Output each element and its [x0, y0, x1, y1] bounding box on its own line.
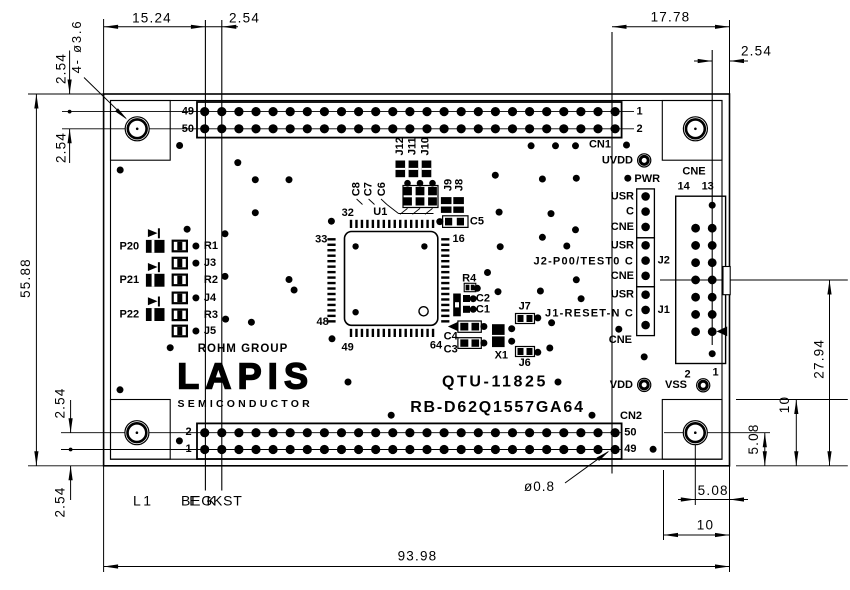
svg-text:J2-P00/TEST0 C: J2-P00/TEST0 C	[533, 256, 634, 268]
svg-text:ø0.8: ø0.8	[524, 479, 555, 494]
svg-text:33: 33	[315, 234, 327, 246]
svg-text:C1: C1	[476, 303, 490, 315]
svg-text:32: 32	[342, 207, 354, 219]
svg-text:CNE: CNE	[682, 165, 705, 177]
svg-text:10: 10	[697, 518, 714, 533]
svg-text:J7: J7	[519, 300, 531, 312]
svg-text:93.98: 93.98	[398, 549, 438, 564]
svg-text:P22: P22	[120, 309, 140, 321]
svg-text:49: 49	[182, 106, 194, 118]
svg-text:49: 49	[624, 443, 636, 455]
svg-text:50: 50	[182, 123, 194, 135]
svg-text:4- ø3.6: 4- ø3.6	[69, 20, 84, 74]
svg-text:QTU-11825: QTU-11825	[442, 374, 548, 391]
svg-text:E: E	[189, 492, 198, 508]
svg-text:CN1: CN1	[589, 138, 611, 150]
svg-text:14: 14	[677, 180, 690, 192]
svg-text:C7: C7	[363, 182, 375, 196]
svg-text:P21: P21	[120, 274, 140, 286]
svg-text:J2: J2	[658, 254, 670, 266]
svg-text:RB-D62Q1557GA64: RB-D62Q1557GA64	[410, 399, 585, 416]
svg-text:R2: R2	[204, 274, 218, 286]
svg-text:CNE: CNE	[611, 221, 634, 233]
svg-text:L1: L1	[133, 492, 154, 508]
svg-text:VDD: VDD	[610, 379, 633, 391]
svg-text:49: 49	[341, 342, 353, 354]
svg-text:17.78: 17.78	[651, 10, 691, 25]
svg-text:J8: J8	[454, 179, 466, 191]
svg-text:2: 2	[684, 368, 690, 380]
svg-text:VSS: VSS	[665, 379, 687, 391]
svg-text:2.54: 2.54	[229, 11, 260, 26]
svg-text:PWR: PWR	[634, 173, 660, 185]
svg-text:J3: J3	[204, 257, 216, 269]
svg-text:R1: R1	[204, 240, 218, 252]
svg-text:55.88: 55.88	[18, 258, 33, 298]
svg-text:1: 1	[186, 443, 192, 455]
svg-text:J9: J9	[442, 179, 454, 191]
svg-text:1: 1	[712, 367, 718, 379]
svg-text:64: 64	[430, 339, 443, 351]
svg-text:J5: J5	[204, 325, 216, 337]
svg-text:J11: J11	[407, 137, 419, 155]
svg-text:CNE: CNE	[611, 270, 634, 282]
svg-text:48: 48	[316, 316, 328, 328]
svg-text:J1-RESET-N C: J1-RESET-N C	[545, 307, 634, 319]
svg-text:J1: J1	[658, 304, 670, 316]
svg-text:J10: J10	[420, 137, 432, 155]
svg-text:2.54: 2.54	[54, 132, 69, 163]
svg-text:C3: C3	[444, 344, 458, 356]
svg-text:5.08: 5.08	[698, 483, 729, 498]
svg-text:2: 2	[186, 426, 192, 438]
svg-text:C8: C8	[351, 182, 363, 196]
svg-text:16: 16	[453, 233, 465, 245]
svg-text:C6: C6	[376, 182, 388, 196]
svg-text:50: 50	[624, 426, 636, 438]
svg-text:LAPIS: LAPIS	[177, 356, 314, 397]
svg-text:R3: R3	[204, 309, 218, 321]
svg-text:2: 2	[637, 123, 643, 135]
svg-text:C4: C4	[444, 331, 459, 343]
svg-text:SEMICONDUCTOR: SEMICONDUCTOR	[178, 398, 313, 410]
svg-text:2.54: 2.54	[53, 486, 68, 517]
svg-text:K: K	[207, 492, 217, 508]
svg-text:P20: P20	[120, 240, 140, 252]
svg-text:2.54: 2.54	[53, 387, 68, 418]
svg-text:UVDD: UVDD	[602, 154, 633, 166]
svg-text:J6: J6	[519, 357, 531, 369]
svg-text:R4: R4	[462, 273, 477, 285]
svg-text:10: 10	[777, 396, 792, 413]
svg-text:CNE: CNE	[609, 334, 632, 346]
svg-text:5.08: 5.08	[746, 423, 761, 454]
svg-text:J12: J12	[394, 137, 406, 155]
svg-text:CN2: CN2	[620, 410, 642, 422]
svg-text:ROHM GROUP: ROHM GROUP	[198, 343, 289, 355]
svg-text:C: C	[626, 206, 634, 218]
svg-text:X1: X1	[495, 350, 508, 362]
svg-text:USR: USR	[611, 289, 634, 301]
svg-text:27.94: 27.94	[812, 339, 827, 379]
svg-text:2.54: 2.54	[741, 44, 772, 59]
svg-text:U1: U1	[373, 206, 387, 218]
svg-text:USR: USR	[611, 190, 634, 202]
svg-text:USR: USR	[611, 239, 634, 251]
svg-text:J4: J4	[204, 292, 217, 304]
svg-text:15.24: 15.24	[132, 11, 172, 26]
svg-text:13: 13	[702, 180, 714, 192]
svg-text:1: 1	[637, 106, 643, 118]
svg-text:2.54: 2.54	[54, 53, 69, 84]
svg-text:C5: C5	[470, 216, 484, 228]
